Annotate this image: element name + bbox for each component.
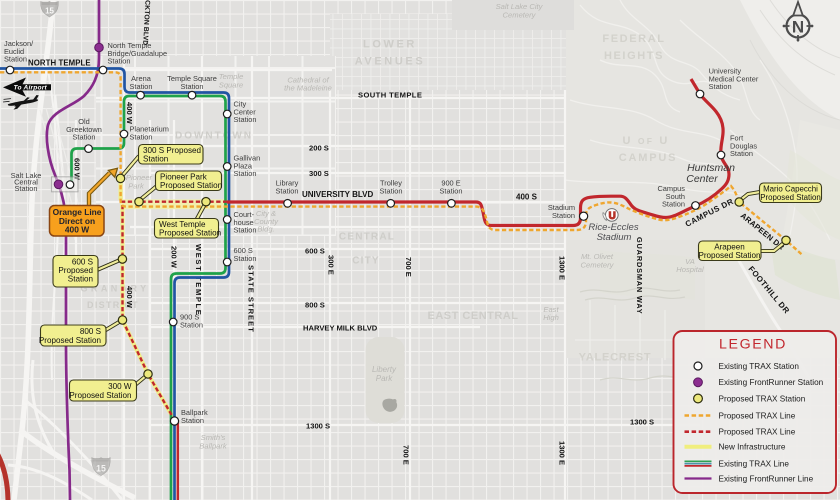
svg-text:Liberty: Liberty (372, 365, 397, 374)
svg-text:Park: Park (128, 182, 145, 191)
svg-text:Station: Station (68, 275, 93, 284)
svg-text:Park: Park (376, 374, 393, 383)
svg-text:400 S: 400 S (516, 193, 538, 202)
svg-text:To Airport: To Airport (14, 84, 48, 91)
svg-text:Cemetery: Cemetery (581, 261, 615, 270)
svg-text:Station: Station (234, 254, 257, 263)
svg-text:N: N (792, 18, 804, 37)
svg-text:1300 S: 1300 S (306, 422, 330, 431)
svg-text:300 S: 300 S (309, 169, 329, 178)
svg-text:Existing FrontRunner Station: Existing FrontRunner Station (719, 378, 824, 387)
svg-text:EAST CENTRAL: EAST CENTRAL (428, 310, 519, 322)
svg-text:Proposed Station: Proposed Station (39, 336, 101, 345)
svg-text:Stadium: Stadium (597, 232, 632, 243)
svg-text:Station: Station (72, 133, 95, 142)
svg-text:700 E: 700 E (404, 257, 413, 277)
svg-text:Station: Station (181, 416, 204, 425)
svg-text:Station: Station (662, 200, 685, 209)
svg-text:High: High (543, 313, 559, 322)
svg-text:SOUTH TEMPLE: SOUTH TEMPLE (358, 91, 422, 100)
svg-text:Proposed Station: Proposed Station (69, 391, 131, 400)
svg-text:Station: Station (130, 132, 153, 141)
svg-text:Station: Station (180, 82, 203, 91)
svg-text:15: 15 (45, 6, 54, 15)
svg-text:Proposed TRAX Station: Proposed TRAX Station (719, 394, 806, 403)
svg-text:UNIVERSITY BLVD: UNIVERSITY BLVD (302, 190, 373, 199)
svg-text:Bldg.: Bldg. (257, 225, 274, 234)
svg-text:Hospital: Hospital (676, 265, 704, 274)
svg-text:FEDERAL: FEDERAL (602, 33, 665, 45)
svg-text:Existing FrontRunner Line: Existing FrontRunner Line (719, 474, 814, 483)
svg-text:15: 15 (96, 463, 106, 473)
svg-text:400 W: 400 W (125, 102, 134, 125)
svg-text:HARVEY MILK BLVD: HARVEY MILK BLVD (303, 324, 378, 333)
svg-text:Station: Station (234, 226, 257, 235)
svg-text:STATE STREET: STATE STREET (247, 265, 256, 333)
svg-text:Station: Station (379, 186, 402, 195)
svg-text:Station: Station (180, 320, 203, 329)
svg-text:Proposed TRAX Line: Proposed TRAX Line (719, 411, 796, 420)
svg-text:Proposed Station: Proposed Station (760, 193, 821, 202)
svg-text:LEGEND: LEGEND (719, 337, 787, 353)
svg-text:the Madeleine: the Madeleine (284, 84, 332, 93)
svg-text:Station: Station (552, 211, 575, 220)
svg-text:Proposed Station: Proposed Station (159, 229, 221, 238)
svg-text:600 S: 600 S (305, 247, 325, 256)
svg-text:AVENUES: AVENUES (355, 56, 426, 68)
svg-text:New Infrastructure: New Infrastructure (719, 443, 786, 452)
svg-text:U OF U: U OF U (622, 135, 669, 147)
svg-text:Station: Station (129, 82, 152, 91)
svg-text:400 W: 400 W (65, 225, 89, 235)
svg-text:800 S: 800 S (305, 301, 325, 310)
svg-text:Proposed Station: Proposed Station (698, 251, 760, 260)
svg-text:1300 S: 1300 S (630, 418, 654, 427)
svg-text:Ballpark: Ballpark (199, 442, 228, 451)
svg-text:Square: Square (219, 81, 244, 90)
svg-text:Station: Station (14, 184, 37, 193)
svg-text:LOWER: LOWER (363, 39, 417, 51)
svg-text:CAMPUS: CAMPUS (619, 152, 677, 164)
svg-text:CENTRAL: CENTRAL (339, 232, 395, 243)
svg-text:YALECREST: YALECREST (579, 352, 652, 364)
svg-text:Station: Station (730, 149, 753, 158)
svg-text:800 S: 800 S (80, 327, 102, 336)
svg-text:300 W: 300 W (108, 382, 132, 391)
svg-text:DOWNTOWN: DOWNTOWN (175, 131, 253, 142)
svg-text:200 W: 200 W (170, 246, 179, 269)
svg-text:200 S: 200 S (309, 144, 329, 153)
svg-text:Station: Station (275, 186, 298, 195)
svg-text:Station: Station (709, 82, 732, 91)
svg-text:Station: Station (234, 115, 257, 124)
svg-text:Station: Station (143, 155, 168, 164)
svg-text:Station: Station (234, 169, 257, 178)
svg-text:Proposed TRAX Line: Proposed TRAX Line (719, 428, 796, 437)
svg-text:GUARDSMAN WAY: GUARDSMAN WAY (635, 237, 644, 314)
svg-text:Existing TRAX Line: Existing TRAX Line (719, 459, 790, 468)
svg-text:Station: Station (108, 57, 131, 66)
svg-text:1300 E: 1300 E (558, 441, 567, 465)
svg-text:400 W: 400 W (125, 286, 134, 309)
svg-text:HEIGHTS: HEIGHTS (604, 50, 664, 62)
svg-text:NORTH TEMPLE: NORTH TEMPLE (28, 59, 91, 68)
svg-text:Station: Station (439, 186, 462, 195)
svg-text:700 E: 700 E (402, 445, 411, 465)
svg-text:Cemetery: Cemetery (503, 11, 537, 20)
svg-text:Proposed Station: Proposed Station (160, 181, 222, 190)
svg-text:CITY: CITY (352, 256, 380, 267)
svg-text:Existing TRAX Station: Existing TRAX Station (719, 362, 800, 371)
svg-text:WEST TEMPLE: WEST TEMPLE (194, 244, 203, 316)
svg-text:300 E: 300 E (327, 255, 336, 275)
svg-text:Center: Center (686, 173, 718, 185)
svg-text:Station: Station (4, 55, 27, 64)
svg-text:1300 E: 1300 E (558, 256, 567, 280)
